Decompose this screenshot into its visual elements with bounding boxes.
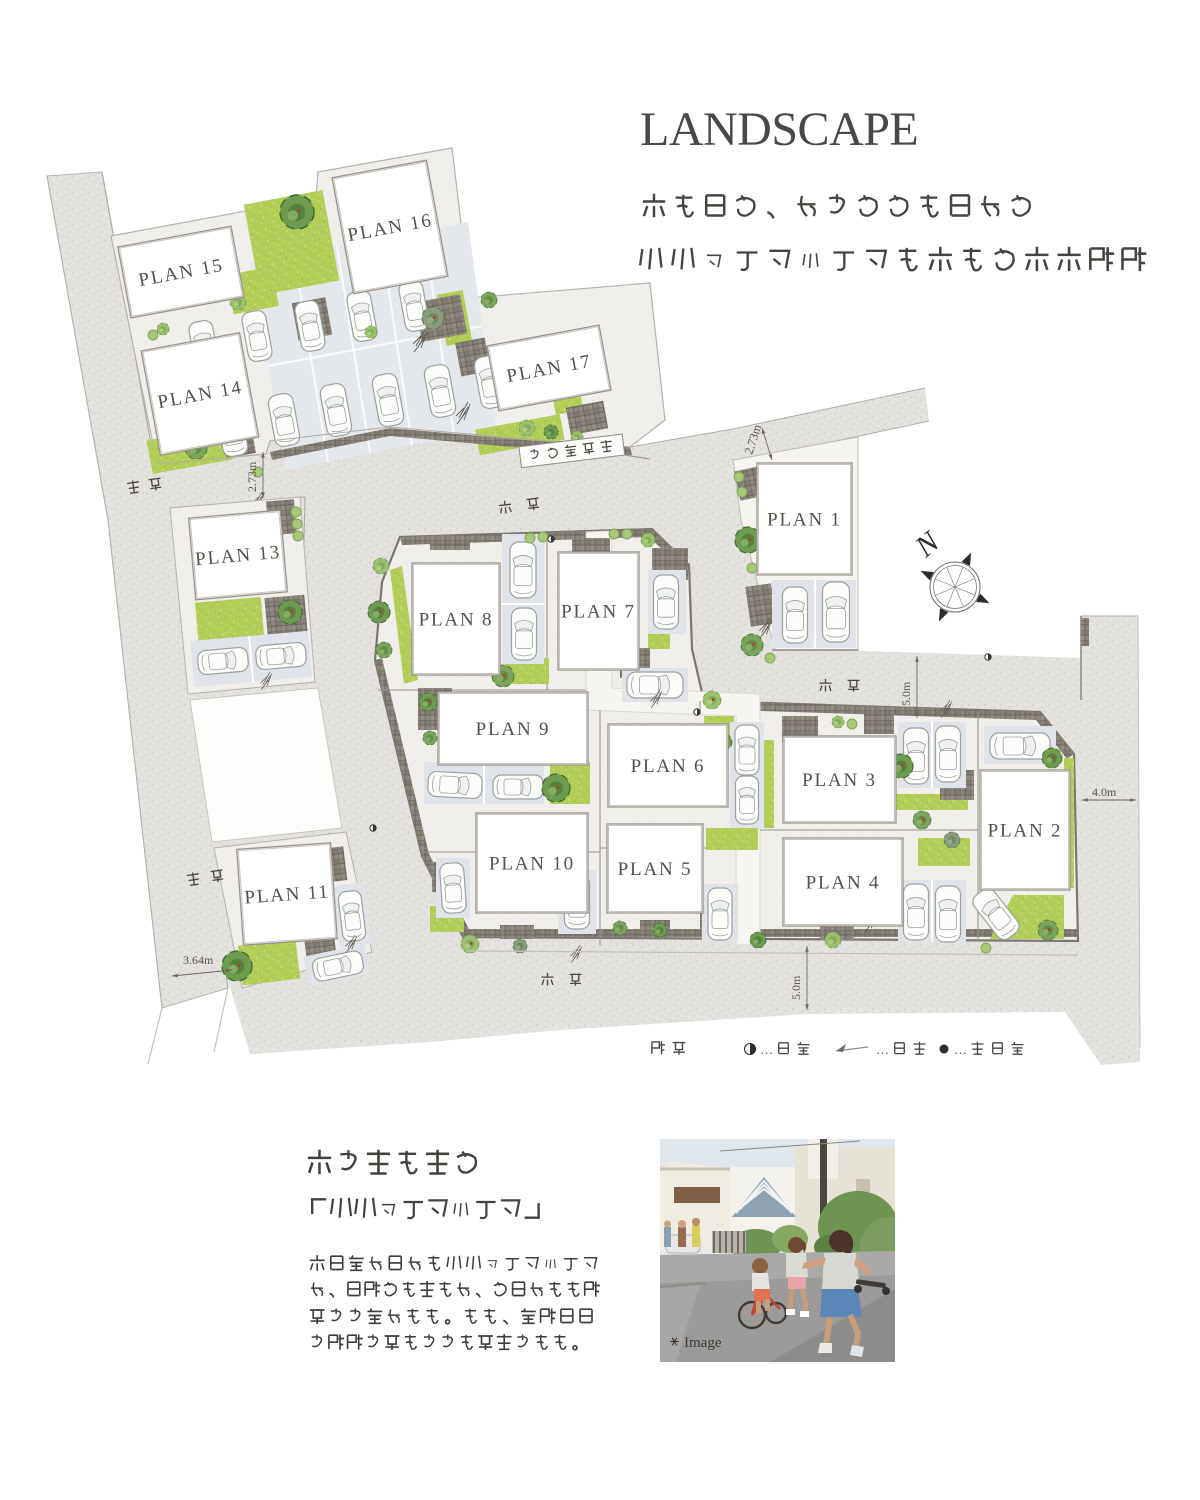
svg-text:…: … (954, 1042, 967, 1057)
svg-text:Image: Image (684, 1335, 722, 1351)
svg-text:…: … (876, 1042, 889, 1057)
svg-text:LANDSCAPE: LANDSCAPE (640, 103, 918, 156)
svg-text:PLAN 2: PLAN 2 (988, 821, 1063, 842)
svg-text:PLAN 4: PLAN 4 (806, 873, 881, 894)
svg-text:N: N (908, 524, 947, 564)
svg-text:4.0m: 4.0m (1092, 785, 1117, 799)
svg-text:3.64m: 3.64m (183, 953, 214, 967)
svg-text:PLAN 8: PLAN 8 (419, 610, 494, 631)
svg-text:…: … (760, 1042, 773, 1057)
svg-text:PLAN 3: PLAN 3 (802, 770, 877, 791)
svg-text:PLAN 5: PLAN 5 (618, 859, 693, 880)
svg-text:PLAN 1: PLAN 1 (767, 510, 842, 531)
svg-text:PLAN 9: PLAN 9 (476, 719, 551, 740)
svg-text:PLAN 6: PLAN 6 (631, 756, 706, 777)
svg-text:PLAN 10: PLAN 10 (489, 854, 575, 875)
svg-text:5.0m: 5.0m (899, 681, 913, 706)
svg-text:PLAN 7: PLAN 7 (561, 602, 636, 623)
svg-text:5.0m: 5.0m (789, 975, 803, 1000)
svg-text:2.73m: 2.73m (245, 461, 259, 492)
